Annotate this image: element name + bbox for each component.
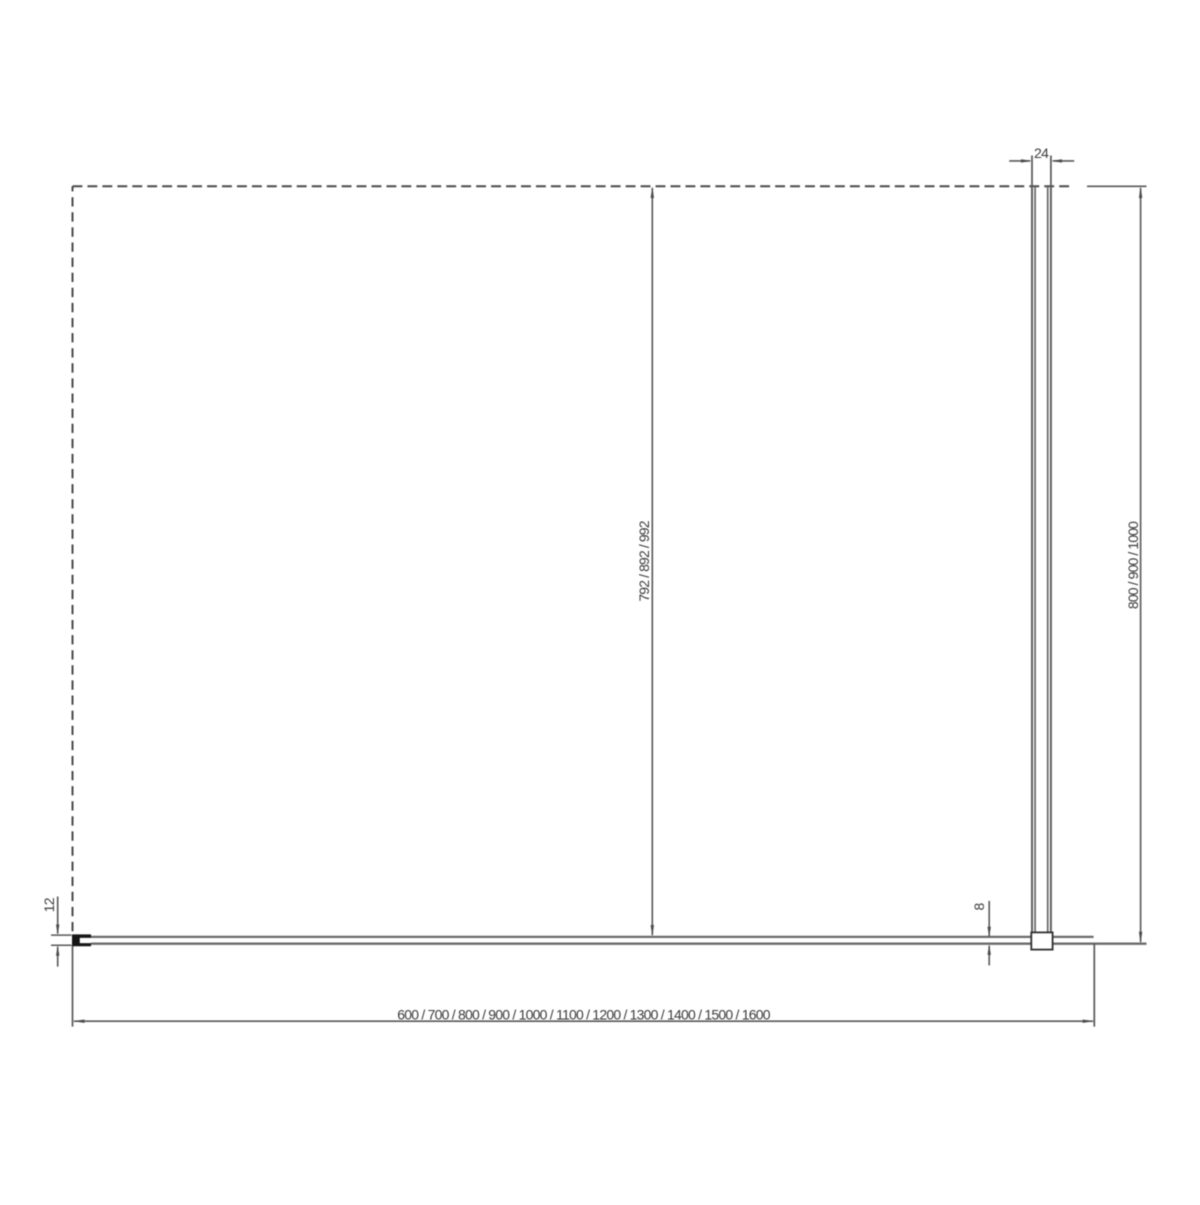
svg-text:8: 8 [971,902,987,910]
svg-text:792 / 892 / 992: 792 / 892 / 992 [636,520,652,601]
svg-text:12: 12 [41,897,57,912]
svg-text:24: 24 [1034,145,1049,161]
svg-text:800 / 900 / 1000: 800 / 900 / 1000 [1125,521,1141,609]
svg-text:600 / 700 / 800 / 900 / 1000 /: 600 / 700 / 800 / 900 / 1000 / 1100 / 12… [397,1007,770,1023]
